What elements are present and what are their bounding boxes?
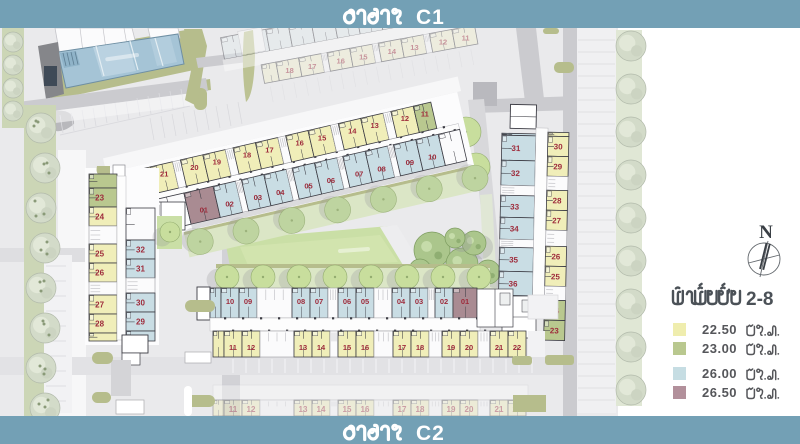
svg-text:12: 12 xyxy=(247,343,255,352)
svg-text:23: 23 xyxy=(550,326,560,335)
svg-text:34: 34 xyxy=(510,224,520,233)
svg-text:15: 15 xyxy=(359,52,367,61)
svg-text:19: 19 xyxy=(213,158,221,167)
svg-text:16: 16 xyxy=(337,57,345,66)
svg-text:27: 27 xyxy=(552,216,562,225)
svg-text:31: 31 xyxy=(511,144,521,153)
svg-text:26.00: 26.00 xyxy=(702,366,737,381)
svg-text:25: 25 xyxy=(551,272,561,281)
svg-text:13: 13 xyxy=(299,343,307,352)
svg-text:23: 23 xyxy=(95,194,104,203)
svg-text:15: 15 xyxy=(343,405,352,414)
svg-text:03: 03 xyxy=(415,297,423,306)
svg-text:18: 18 xyxy=(416,405,425,414)
svg-text:23.00: 23.00 xyxy=(702,341,737,356)
svg-text:32: 32 xyxy=(136,246,145,255)
svg-text:35: 35 xyxy=(509,255,519,264)
svg-text:26: 26 xyxy=(551,252,561,261)
svg-text:30: 30 xyxy=(554,142,564,151)
svg-text:16: 16 xyxy=(361,405,370,414)
svg-text:30: 30 xyxy=(136,299,145,308)
svg-text:18: 18 xyxy=(243,151,251,160)
svg-text:17: 17 xyxy=(265,145,273,154)
svg-text:19: 19 xyxy=(447,343,455,352)
svg-text:17: 17 xyxy=(398,405,407,414)
svg-text:11: 11 xyxy=(229,405,238,414)
svg-text:11: 11 xyxy=(421,110,429,119)
svg-text:21: 21 xyxy=(495,343,503,352)
svg-text:09: 09 xyxy=(244,297,252,306)
svg-text:12: 12 xyxy=(247,405,256,414)
svg-text:24: 24 xyxy=(95,213,104,222)
svg-text:01: 01 xyxy=(461,297,469,306)
svg-text:36: 36 xyxy=(509,279,519,288)
svg-text:27: 27 xyxy=(95,301,104,310)
svg-text:13: 13 xyxy=(299,405,308,414)
svg-text:17: 17 xyxy=(398,343,406,352)
svg-text:02: 02 xyxy=(225,199,233,208)
svg-text:12: 12 xyxy=(439,38,447,47)
svg-text:06: 06 xyxy=(327,176,335,185)
svg-text:29: 29 xyxy=(553,162,563,171)
svg-text:C2: C2 xyxy=(416,422,445,444)
svg-text:28: 28 xyxy=(95,320,104,329)
svg-text:32: 32 xyxy=(511,169,521,178)
svg-text:N: N xyxy=(759,222,773,243)
svg-text:20: 20 xyxy=(465,405,474,414)
svg-text:14: 14 xyxy=(317,343,326,352)
svg-text:16: 16 xyxy=(295,138,303,147)
svg-text:21: 21 xyxy=(160,170,168,179)
svg-text:14: 14 xyxy=(388,47,397,56)
svg-text:26.50: 26.50 xyxy=(702,385,737,400)
svg-text:31: 31 xyxy=(136,265,145,274)
svg-text:33: 33 xyxy=(510,202,520,211)
svg-text:12: 12 xyxy=(401,114,409,123)
svg-text:18: 18 xyxy=(416,343,424,352)
svg-text:08: 08 xyxy=(377,164,385,173)
svg-text:19: 19 xyxy=(447,405,456,414)
svg-text:16: 16 xyxy=(361,343,369,352)
svg-text:03: 03 xyxy=(254,193,262,202)
svg-text:2-8: 2-8 xyxy=(746,289,773,310)
svg-text:09: 09 xyxy=(406,158,414,167)
svg-text:22.50: 22.50 xyxy=(702,322,737,337)
svg-text:11: 11 xyxy=(462,33,470,42)
svg-text:15: 15 xyxy=(343,343,351,352)
svg-text:14: 14 xyxy=(317,405,326,414)
svg-text:25: 25 xyxy=(95,250,104,259)
svg-text:07: 07 xyxy=(315,297,323,306)
svg-text:14: 14 xyxy=(348,126,357,135)
svg-text:11: 11 xyxy=(229,343,237,352)
svg-text:10: 10 xyxy=(428,153,436,162)
svg-text:21: 21 xyxy=(495,405,504,414)
svg-text:13: 13 xyxy=(371,121,379,130)
svg-text:08: 08 xyxy=(297,297,305,306)
svg-text:29: 29 xyxy=(136,318,145,327)
svg-text:06: 06 xyxy=(343,297,351,306)
svg-text:04: 04 xyxy=(397,297,406,306)
svg-text:13: 13 xyxy=(410,43,418,52)
svg-text:10: 10 xyxy=(226,297,234,306)
svg-text:07: 07 xyxy=(355,170,363,179)
svg-text:02: 02 xyxy=(440,297,448,306)
svg-text:15: 15 xyxy=(318,133,326,142)
svg-text:20: 20 xyxy=(190,163,198,172)
svg-text:18: 18 xyxy=(285,66,293,75)
svg-text:28: 28 xyxy=(552,196,562,205)
svg-text:C1: C1 xyxy=(416,6,445,29)
svg-text:04: 04 xyxy=(276,188,285,197)
svg-text:05: 05 xyxy=(361,297,369,306)
svg-text:22: 22 xyxy=(513,343,521,352)
svg-text:20: 20 xyxy=(465,343,473,352)
svg-text:26: 26 xyxy=(95,269,104,278)
svg-text:17: 17 xyxy=(308,62,316,71)
svg-text:01: 01 xyxy=(200,205,208,214)
svg-text:05: 05 xyxy=(304,181,312,190)
